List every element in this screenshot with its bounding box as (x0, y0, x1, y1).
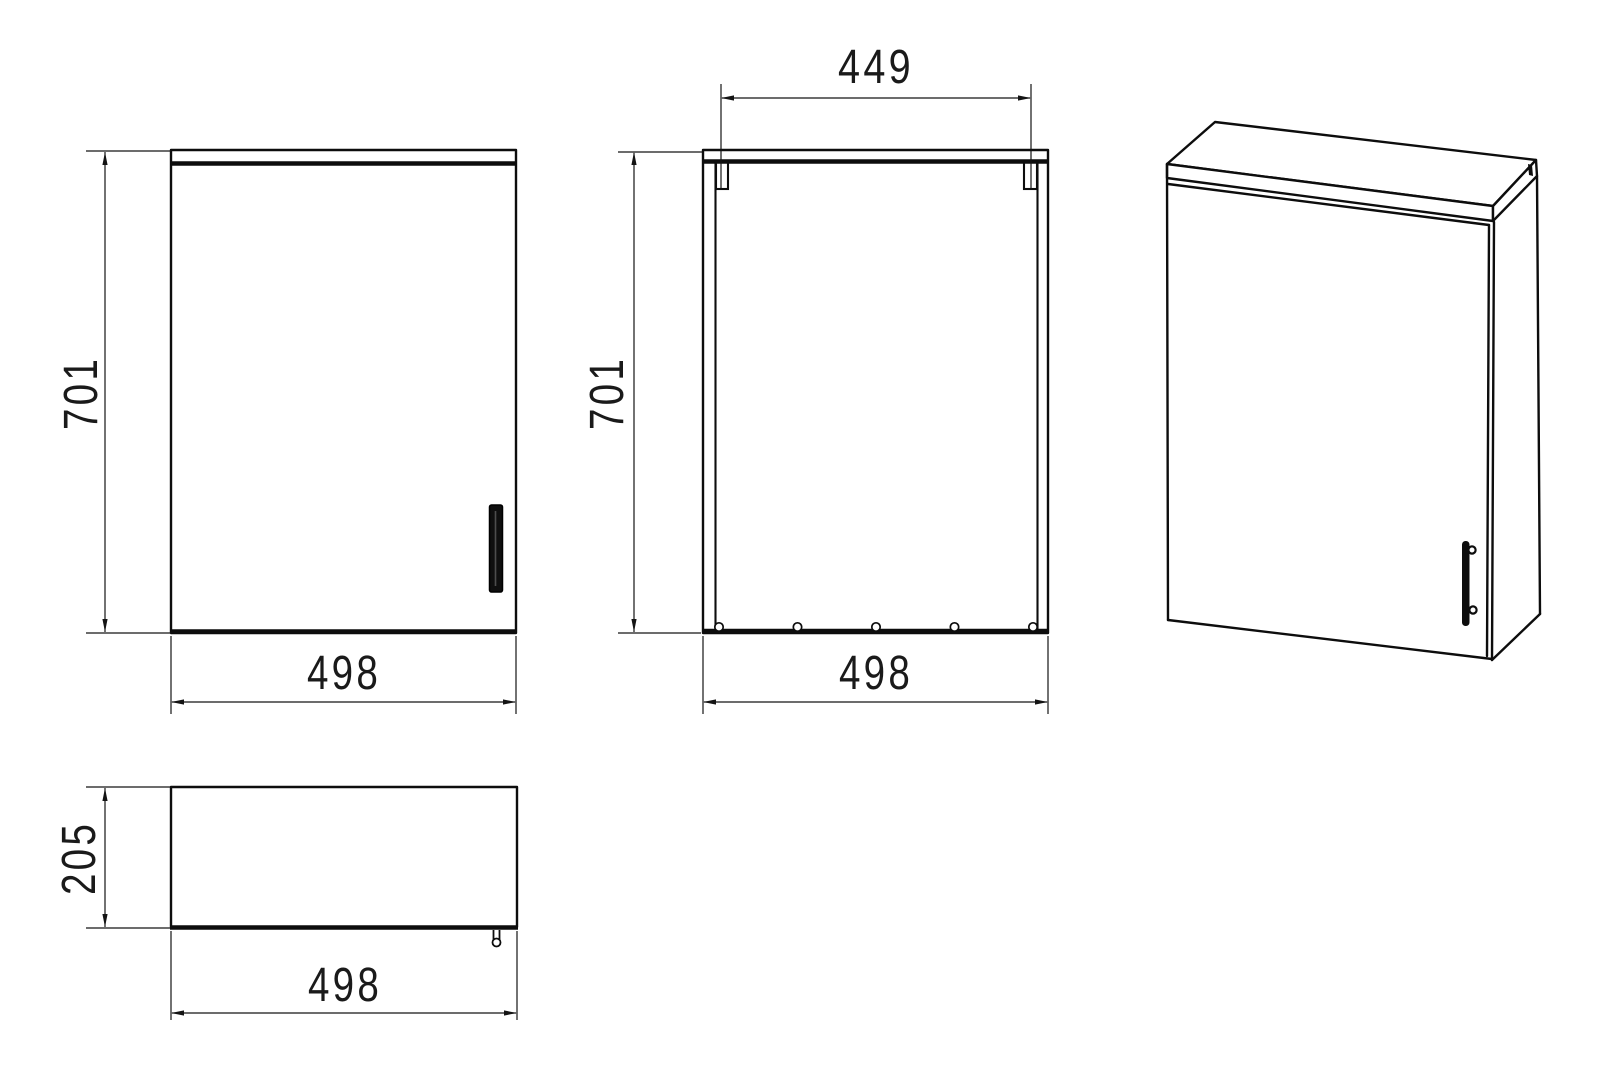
iso-door-left-edge (1167, 164, 1168, 620)
plan-view: 205 498 (53, 787, 518, 1020)
isometric-view (1167, 122, 1540, 660)
back-screw-hole (793, 623, 801, 631)
front-height-dimension: 701 (55, 151, 171, 633)
iso-right-bottom-edge (1492, 614, 1540, 660)
front-view: 701 498 (55, 150, 516, 714)
plan-door-handle (493, 930, 501, 947)
plan-width-label: 498 (308, 959, 382, 1012)
iso-door-right-edge (1487, 225, 1489, 656)
back-screw-hole (715, 623, 723, 631)
front-width-label: 498 (307, 647, 381, 700)
plan-width-dimension: 498 (171, 931, 517, 1020)
back-screw-hole (872, 623, 880, 631)
iso-front-right-edge (1492, 222, 1494, 660)
back-cabinet-outline (703, 150, 1048, 633)
back-width-dimension: 498 (703, 636, 1048, 714)
back-height-dimension: 701 (581, 152, 702, 633)
back-width-label: 498 (839, 647, 913, 700)
back-view: 449 701 498 (581, 41, 1048, 714)
back-height-label: 701 (581, 356, 634, 430)
iso-right-back-edge (1537, 176, 1540, 614)
front-width-dimension: 498 (171, 636, 516, 714)
drawing-canvas: 701 498 (0, 0, 1600, 1084)
iso-door-bottom-edge (1168, 620, 1492, 659)
back-inner-width-label: 449 (838, 41, 914, 94)
plan-cabinet-outline (171, 787, 517, 927)
front-cabinet-outline (171, 150, 516, 633)
back-screw-hole (950, 623, 958, 631)
technical-drawing-page: 701 498 (0, 0, 1600, 1084)
back-screw-hole (1029, 623, 1037, 631)
plan-depth-label: 205 (53, 821, 106, 895)
iso-door-handle (1462, 541, 1477, 626)
front-height-label: 701 (55, 356, 108, 430)
front-door-handle (490, 505, 503, 592)
plan-depth-dimension: 205 (53, 787, 170, 928)
